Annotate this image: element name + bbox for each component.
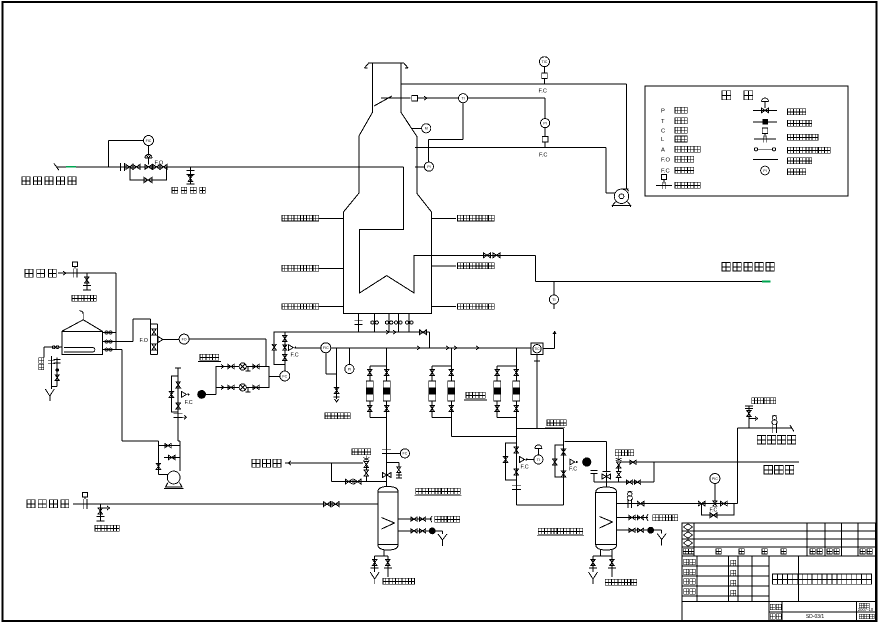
- svg-text:PI: PI: [543, 121, 546, 125]
- svg-text:F.C: F.C: [539, 153, 547, 159]
- svg-text:F.C: F.C: [661, 169, 670, 175]
- svg-text:F.C: F.C: [185, 400, 193, 406]
- svg-text:FC: FC: [403, 452, 408, 456]
- svg-text:SD-03/1: SD-03/1: [806, 614, 825, 620]
- svg-text:PIC: PIC: [712, 477, 718, 481]
- svg-text:F.C: F.C: [521, 465, 529, 471]
- svg-text:TIC: TIC: [542, 60, 548, 64]
- svg-text:FO: FO: [182, 337, 187, 341]
- svg-text:T: T: [661, 119, 665, 125]
- svg-text:PI: PI: [348, 367, 351, 371]
- svg-text:P: P: [661, 108, 665, 114]
- svg-text:F.C: F.C: [710, 508, 718, 514]
- svg-text:TI: TI: [461, 96, 464, 100]
- svg-text:F.O: F.O: [661, 158, 671, 164]
- svg-text:FC: FC: [282, 374, 287, 378]
- svg-text:FIC: FIC: [323, 346, 329, 350]
- svg-text:PI: PI: [427, 165, 430, 169]
- svg-text:F.C: F.C: [569, 467, 577, 473]
- svg-text:A: A: [661, 147, 665, 153]
- svg-text:2007-10: 2007-10: [858, 607, 874, 612]
- svg-text:FIC: FIC: [146, 139, 152, 143]
- svg-text:F.C: F.C: [291, 353, 299, 359]
- svg-text:PI: PI: [763, 169, 766, 173]
- svg-text:F.C: F.C: [539, 89, 547, 95]
- svg-text:M: M: [425, 127, 428, 131]
- svg-text:C: C: [661, 128, 665, 134]
- svg-text:F.O: F.O: [140, 338, 148, 344]
- svg-text:TI: TI: [552, 298, 555, 302]
- svg-text:TIC: TIC: [534, 347, 540, 351]
- svg-text:TI: TI: [537, 458, 540, 462]
- svg-text:F.O: F.O: [155, 161, 164, 167]
